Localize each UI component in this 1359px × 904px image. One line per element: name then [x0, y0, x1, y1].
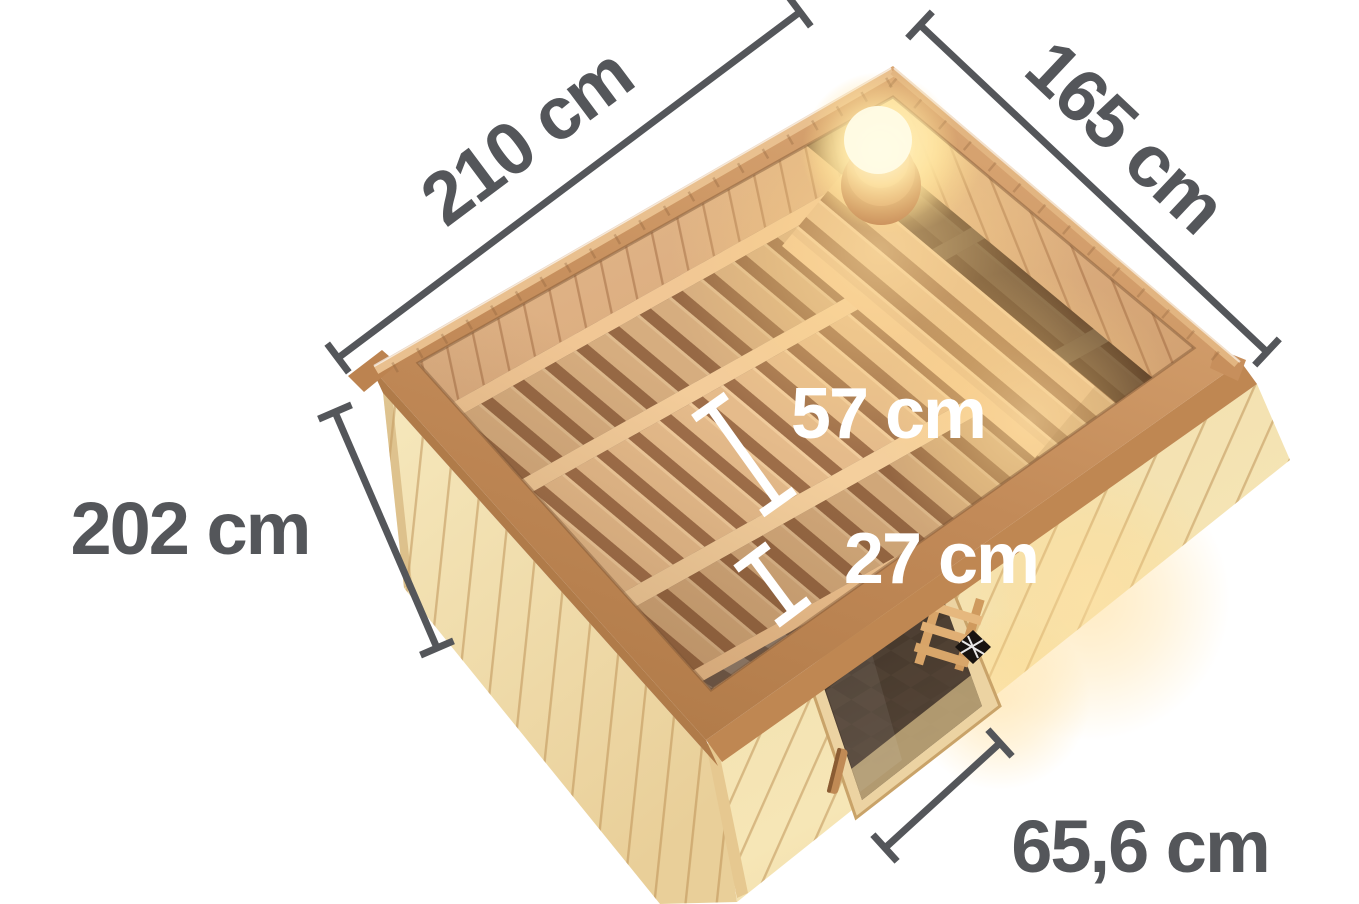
label-wall-height: 202 cm [71, 487, 310, 570]
label-door-width: 65,6 cm [1011, 805, 1269, 888]
sauna-dimension-diagram: 210 cm 165 cm 202 cm 65,6 cm 57 cm 27 cm [0, 0, 1359, 904]
label-step-depth: 27 cm [844, 519, 1038, 599]
label-bench-depth: 57 cm [791, 374, 985, 454]
sauna-lamp [802, 72, 958, 228]
diagram-canvas: 210 cm 165 cm 202 cm 65,6 cm 57 cm 27 cm [0, 0, 1359, 904]
